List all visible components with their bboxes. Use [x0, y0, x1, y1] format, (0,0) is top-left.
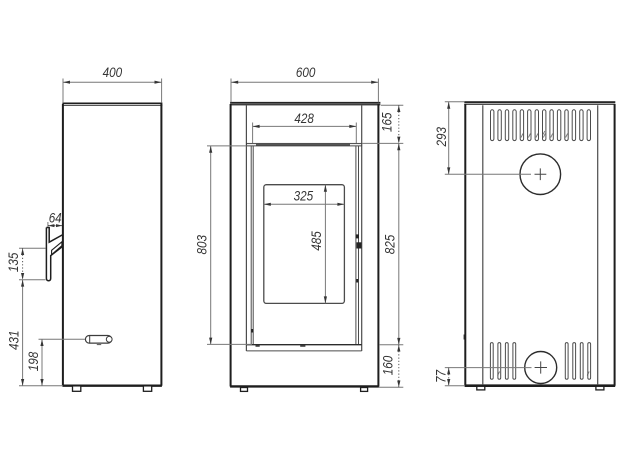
- svg-text:64: 64: [49, 209, 62, 225]
- svg-text:165: 165: [379, 112, 395, 132]
- svg-text:428: 428: [294, 110, 314, 126]
- svg-text:400: 400: [103, 64, 123, 80]
- svg-text:325: 325: [294, 187, 314, 203]
- svg-text:431: 431: [6, 331, 22, 351]
- svg-text:293: 293: [433, 127, 449, 148]
- svg-text:600: 600: [296, 64, 316, 80]
- svg-text:485: 485: [308, 231, 324, 251]
- svg-text:160: 160: [379, 356, 395, 376]
- svg-text:803: 803: [193, 235, 209, 255]
- svg-text:77: 77: [433, 369, 449, 383]
- svg-text:135: 135: [5, 252, 21, 272]
- svg-text:825: 825: [381, 235, 397, 255]
- svg-text:198: 198: [25, 352, 41, 372]
